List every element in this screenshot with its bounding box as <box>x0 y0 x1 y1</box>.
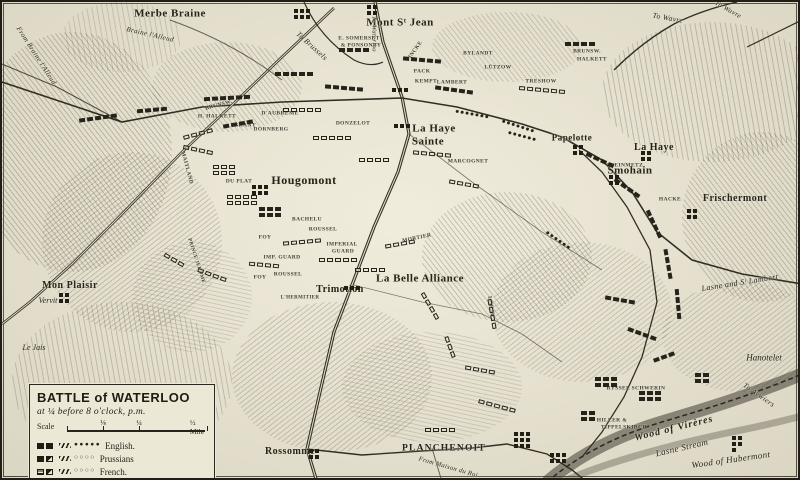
label-lasne-and-s-lambert: Lasne and Sᵗ Lambert <box>701 273 779 293</box>
french-infantry-icon <box>46 469 53 475</box>
filled-unit-cluster <box>586 152 615 168</box>
label-le-jais: Le Jais <box>23 344 46 352</box>
open-unit-cluster <box>283 238 321 245</box>
hill-shading <box>492 242 672 382</box>
legend-label-french: French. <box>100 467 127 477</box>
label-lambert: LAMBERT <box>437 80 467 86</box>
scale-tick-label: ½ Mile <box>190 418 204 436</box>
map-title: BATTLE of WATERLOO <box>37 390 207 405</box>
label-dornberg: DORNBERG <box>254 127 289 133</box>
english-skirmisher-icon: ●●●●● <box>74 442 101 449</box>
dots-unit-cluster <box>508 131 536 141</box>
hill-shading <box>42 152 222 332</box>
label-vervit: Vervit <box>39 297 58 305</box>
label-hiller: HILLER & <box>597 418 628 424</box>
french-cavalry-icon <box>59 469 71 474</box>
label-planchenoit: PLANCHENOIT <box>402 444 486 454</box>
legend-label-english: English. <box>105 441 135 451</box>
filled-unit-cluster <box>605 295 635 304</box>
legend-row-prussians: ○○○○ Prussians <box>37 453 207 464</box>
label-to-brussels: To Brussels <box>295 30 329 62</box>
label-la-belle-alliance: La Belle Alliance <box>376 274 464 285</box>
open-unit-cluster <box>163 253 184 267</box>
open-unit-cluster <box>449 179 479 188</box>
french-infantry-icon <box>37 469 44 475</box>
bldg-unit-cluster <box>309 449 319 459</box>
filled-unit-cluster <box>137 107 167 114</box>
label-foy: FOY <box>259 235 272 241</box>
legend-row-french: ○○○○ French. <box>37 466 207 477</box>
open-unit-cluster <box>355 268 385 272</box>
label-du-plat: DU PLAT <box>226 179 252 185</box>
label-l-tzow: LÜTZOW <box>484 65 511 71</box>
bldg-unit-cluster <box>392 88 408 92</box>
label-la-haye: La Haye <box>412 124 456 135</box>
bldg-unit-cluster <box>573 145 583 155</box>
dots-unit-cluster <box>455 110 488 119</box>
bldg-unit-cluster <box>59 293 69 303</box>
hill-shading <box>662 282 800 392</box>
filled-unit-cluster <box>79 113 117 122</box>
legend-label-prussians: Prussians <box>100 454 134 464</box>
filled-unit-cluster <box>339 48 369 52</box>
filled-unit-cluster <box>581 411 595 421</box>
label-roussel: ROUSSEL <box>309 227 337 233</box>
label-treshow: TRESHOW <box>525 79 556 85</box>
scale-tick <box>67 426 68 431</box>
label-bylandt: BYLANDT <box>463 51 493 57</box>
label-donzelot: DONZELOT <box>336 121 370 127</box>
dots-unit-cluster <box>502 119 534 132</box>
label-merbe-braine: Merbe Braine <box>134 9 206 20</box>
open-unit-cluster <box>478 399 516 413</box>
bldg-unit-cluster <box>294 9 310 19</box>
prussian-cavalry-icon <box>59 456 71 461</box>
scale-tick-label: ⅛ <box>100 418 106 427</box>
hill-shading <box>602 22 800 162</box>
open-unit-cluster <box>421 292 439 320</box>
open-unit-cluster <box>183 145 213 155</box>
filled-unit-cluster <box>646 210 662 239</box>
bldg-unit-cluster <box>687 209 697 219</box>
label-wood-of-hubermont: Wood of Hubermont <box>691 450 771 470</box>
label-to-aywiers: To Aywiers <box>742 381 776 408</box>
label-hougomont: Hougomont <box>271 174 336 186</box>
label-roussel: ROUSSEL <box>274 272 302 278</box>
filled-unit-cluster <box>663 249 672 279</box>
bldg-unit-cluster <box>394 124 410 128</box>
french-skirmisher-icon: ○○○○ <box>74 468 96 475</box>
english-infantry-icon <box>37 443 44 449</box>
open-unit-cluster <box>519 86 565 94</box>
open-unit-cluster <box>385 239 415 248</box>
dots-unit-cluster <box>546 231 571 250</box>
prussian-infantry-icon <box>46 456 53 462</box>
scale-tick <box>207 426 208 431</box>
label-tippelskirch: TIPPELSKIRCH <box>601 425 647 431</box>
scale-bar: Scale ⅛ ¼ ½ Mile <box>37 420 207 436</box>
filled-unit-cluster <box>595 377 617 387</box>
filled-unit-cluster <box>639 391 661 401</box>
hill-shading <box>232 302 432 452</box>
label-rossomme: Rossomme <box>265 447 315 457</box>
waterloo-map: Merbe BraineMont Sᵗ JeanLa HayeSainteHou… <box>0 0 800 480</box>
hill-shading <box>342 332 522 442</box>
label-maitland: MAITLAND <box>179 151 193 185</box>
label-h-halkett: H. HALKETT <box>198 114 236 120</box>
label-brunsw: BRUNSW. <box>573 49 601 55</box>
map-subtitle: at ¼ before 8 o'clock, p.m. <box>37 407 207 417</box>
label-foy: FOY <box>254 275 267 281</box>
legend-row-english: ●●●●● English. <box>37 440 207 451</box>
scale-tick-label: ¼ <box>136 418 142 427</box>
bldg-unit-cluster <box>344 286 360 290</box>
open-unit-cluster <box>319 258 357 262</box>
label-kempt: KEMPT <box>415 79 437 85</box>
bldg-unit-cluster <box>609 175 619 185</box>
filled-unit-cluster <box>653 351 675 362</box>
open-unit-cluster <box>359 158 389 162</box>
bldg-unit-cluster <box>252 185 268 195</box>
bldg-unit-cluster <box>550 453 566 463</box>
filled-unit-cluster <box>627 327 657 341</box>
open-unit-cluster <box>283 108 321 112</box>
scale-line <box>67 430 205 432</box>
label-brunsw: BRUNSW. <box>205 100 233 113</box>
hill-shading <box>422 192 592 322</box>
open-unit-cluster <box>227 195 257 205</box>
filled-unit-cluster <box>275 72 313 76</box>
label-d-aubrem: D'AUBREMÉ <box>261 111 298 117</box>
hill-shading <box>682 132 800 302</box>
label-halkett: HALKETT <box>577 57 607 63</box>
label-papelotte: Papelotte <box>552 134 593 143</box>
filled-unit-cluster <box>675 289 682 319</box>
label-guard: GUARD <box>332 249 354 255</box>
filled-unit-cluster <box>565 42 595 46</box>
english-infantry-icon <box>46 443 53 449</box>
label-braine-l-alleud: Braine l'Alleud <box>126 26 175 44</box>
hill-shading <box>432 12 582 82</box>
label-from-braine-l-alleud: From Braine l'Alleud <box>15 26 58 86</box>
open-unit-cluster <box>249 262 279 269</box>
filled-unit-cluster <box>259 207 281 217</box>
label-pack: PACK <box>414 69 431 75</box>
label-from-maison-du-roi: From Maison du Roi <box>418 456 479 479</box>
label-imp-guard: IMP. GUARD <box>263 255 300 261</box>
english-cavalry-icon <box>59 443 71 448</box>
bldg-unit-cluster <box>514 432 530 448</box>
filled-unit-cluster <box>435 85 473 94</box>
label-imperial: IMPERIAL <box>326 242 357 248</box>
label-marcognet: MARCOGNET <box>448 159 489 165</box>
scale-word: Scale <box>37 422 54 431</box>
prussian-infantry-icon <box>37 456 44 462</box>
label-sainte: Sainte <box>412 137 444 148</box>
open-unit-cluster <box>413 150 451 157</box>
label-to-wavre: To Wavre <box>652 12 684 25</box>
open-unit-cluster <box>444 336 455 358</box>
open-unit-cluster <box>213 165 235 175</box>
map-legend-box: BATTLE of WATERLOO at ¼ before 8 o'clock… <box>29 384 215 480</box>
bldg-unit-cluster <box>367 5 377 15</box>
label-bachelu: BACHELU <box>292 217 322 223</box>
label-to-wavre: To Wavre <box>714 0 743 20</box>
legend: ●●●●● English. ○○○○ Prussians ○○○○ Frenc… <box>37 440 207 477</box>
label-l-hermitier: L'HERMITIER <box>281 296 320 301</box>
label-prince-jerome: PRINCE JEROME <box>186 238 205 284</box>
prussian-skirmisher-icon: ○○○○ <box>74 455 96 462</box>
label-frischermont: Frischermont <box>703 194 767 204</box>
label-hacke: HACKE <box>659 197 681 203</box>
hill-shading <box>0 32 172 272</box>
bldg-unit-cluster <box>732 436 742 452</box>
filled-unit-cluster <box>325 84 363 91</box>
open-unit-cluster <box>183 128 213 140</box>
label-e-somerset: E. SOMERSET <box>338 36 379 42</box>
open-unit-cluster <box>465 365 495 374</box>
label-lasne-stream: Lasne Stream <box>655 438 709 459</box>
label-hanotelet: Hanotelet <box>746 354 782 363</box>
bldg-unit-cluster <box>641 151 651 161</box>
filled-unit-cluster <box>695 373 709 383</box>
label-mon-plaisir: Mon Plaisir <box>42 281 98 291</box>
open-unit-cluster <box>425 428 455 432</box>
open-unit-cluster <box>313 136 351 140</box>
